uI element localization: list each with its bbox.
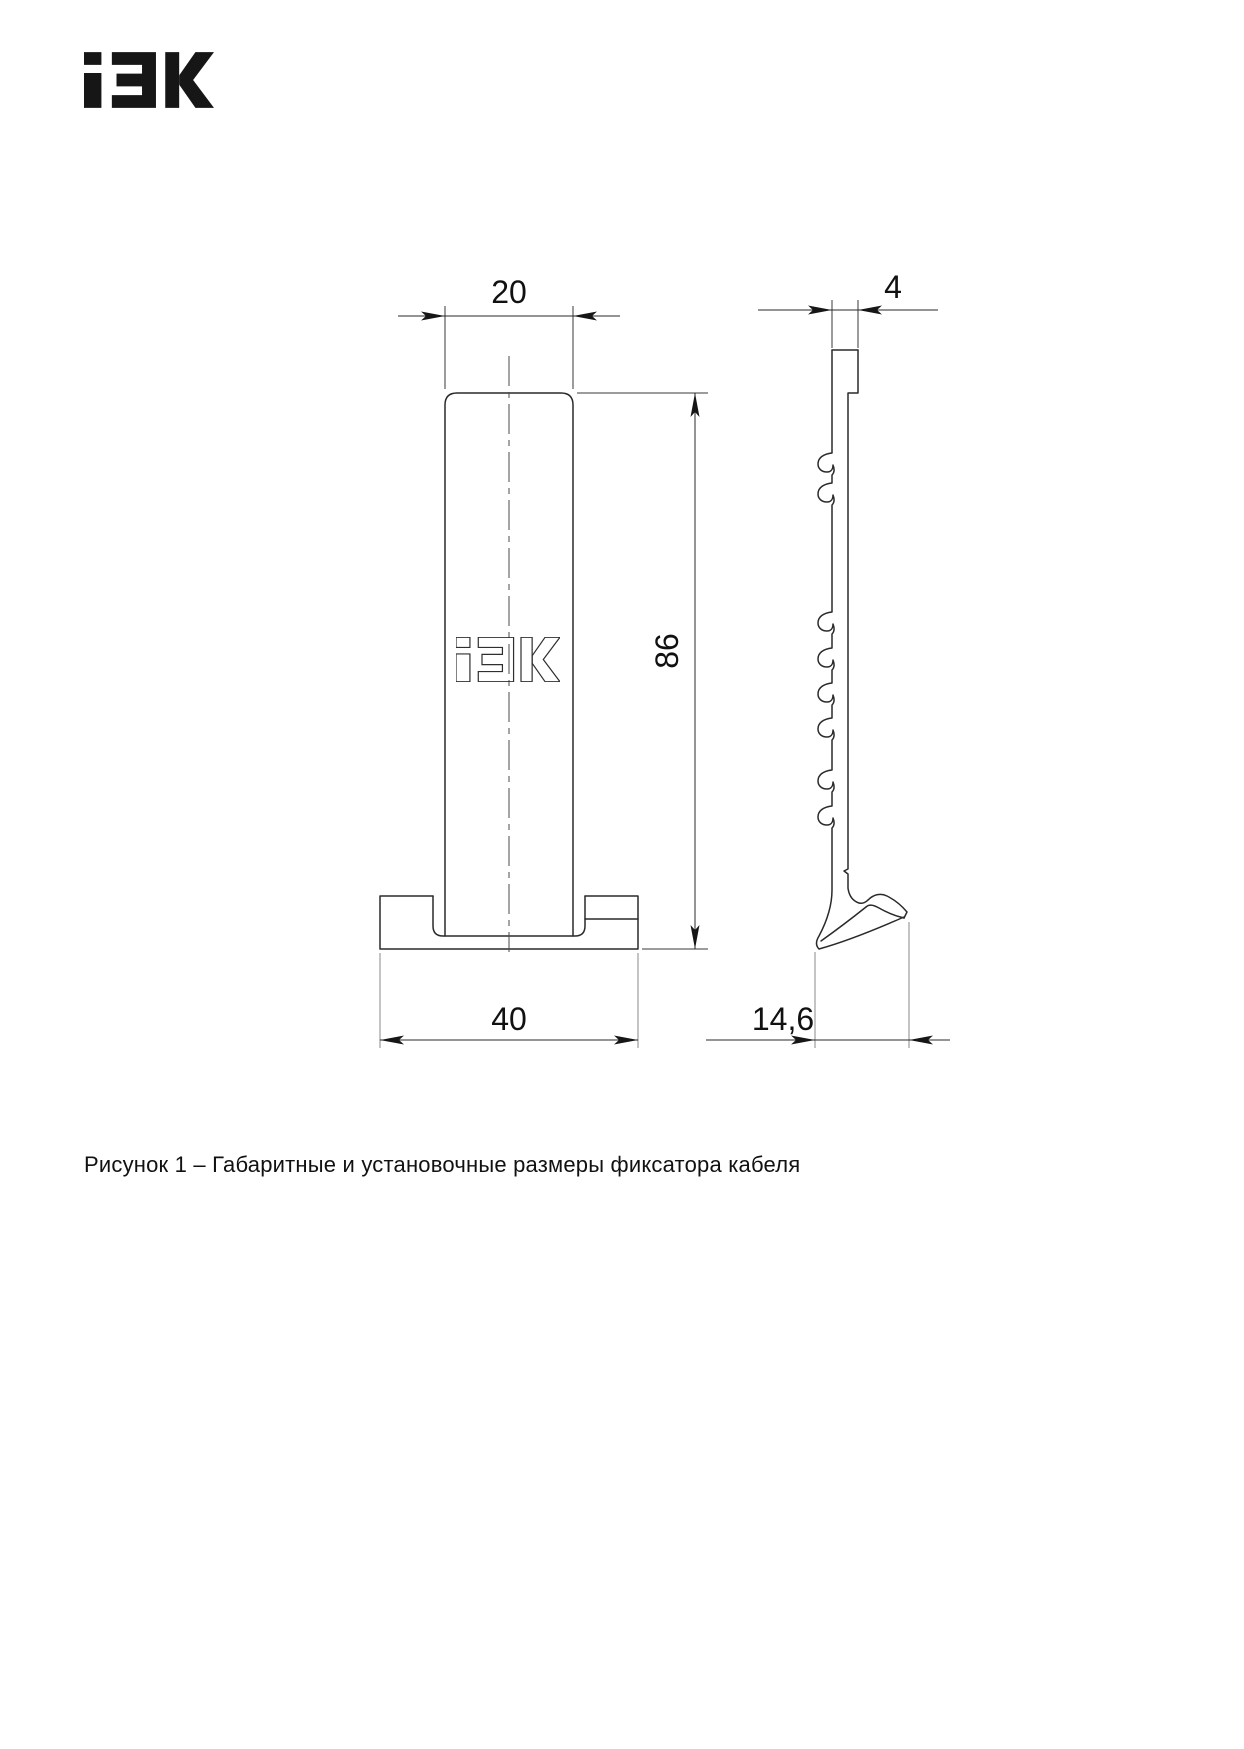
side-view bbox=[817, 350, 908, 949]
iek-logo-embossed-icon bbox=[456, 637, 560, 682]
iek-logo-icon bbox=[84, 52, 214, 108]
side-left-edge-teeth bbox=[817, 350, 905, 949]
technical-drawing: 20 86 40 4 bbox=[0, 0, 1244, 1190]
dim-height: 86 bbox=[577, 393, 708, 949]
front-view bbox=[380, 356, 638, 952]
dim-foot-depth: 14,6 bbox=[706, 922, 950, 1048]
side-hook-lower bbox=[866, 905, 904, 918]
dim-thickness: 4 bbox=[758, 269, 938, 348]
dim40-label: 40 bbox=[491, 1001, 527, 1037]
part-logo bbox=[456, 637, 560, 682]
dim4-label: 4 bbox=[884, 269, 902, 305]
dim-base-width: 40 bbox=[380, 953, 638, 1048]
dim20-label: 20 bbox=[491, 274, 527, 310]
document-page: 20 86 40 4 bbox=[0, 0, 1244, 1749]
side-right-edge bbox=[844, 350, 868, 903]
figure-caption: Рисунок 1 – Габаритные и установочные ра… bbox=[84, 1152, 800, 1178]
brand-logo bbox=[84, 52, 214, 108]
dim86-label: 86 bbox=[649, 633, 685, 669]
dim146-label: 14,6 bbox=[752, 1001, 814, 1037]
